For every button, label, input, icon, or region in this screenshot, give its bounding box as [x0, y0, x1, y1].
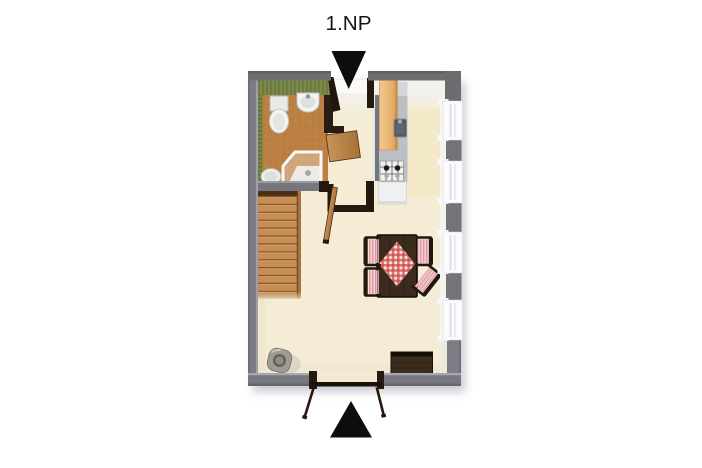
svg-text:1.NP: 1.NP — [326, 12, 372, 35]
